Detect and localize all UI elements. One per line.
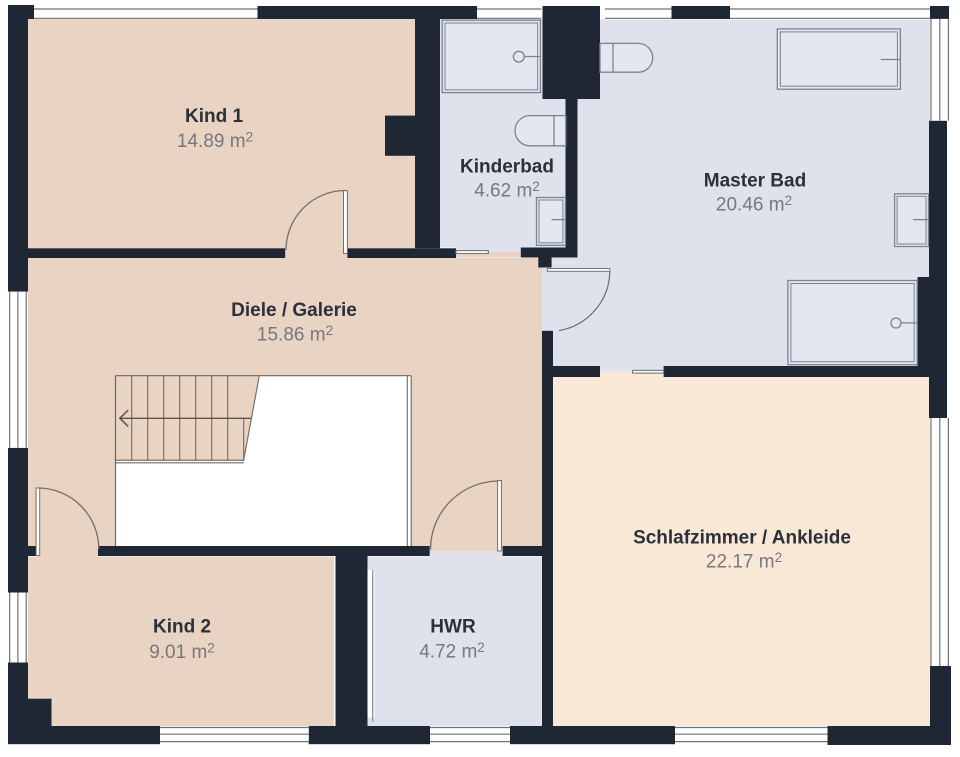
svg-text:22.17 m2: 22.17 m2 <box>706 550 782 573</box>
svg-text:Kind 1: Kind 1 <box>185 106 243 127</box>
svg-text:HWR: HWR <box>430 617 476 638</box>
svg-text:Schlafzimmer / Ankleide: Schlafzimmer / Ankleide <box>633 528 851 549</box>
svg-text:Kind 2: Kind 2 <box>153 617 211 638</box>
svg-text:20.46 m2: 20.46 m2 <box>716 193 792 216</box>
svg-text:9.01 m2: 9.01 m2 <box>149 641 215 664</box>
svg-text:4.72 m2: 4.72 m2 <box>419 640 485 663</box>
svg-text:14.89 m2: 14.89 m2 <box>177 130 253 153</box>
svg-text:Kinderbad: Kinderbad <box>460 157 554 178</box>
svg-text:Diele / Galerie: Diele / Galerie <box>231 300 357 321</box>
svg-text:Master Bad: Master Bad <box>704 171 806 192</box>
svg-text:15.86 m2: 15.86 m2 <box>257 323 333 346</box>
svg-text:4.62 m2: 4.62 m2 <box>474 179 540 202</box>
